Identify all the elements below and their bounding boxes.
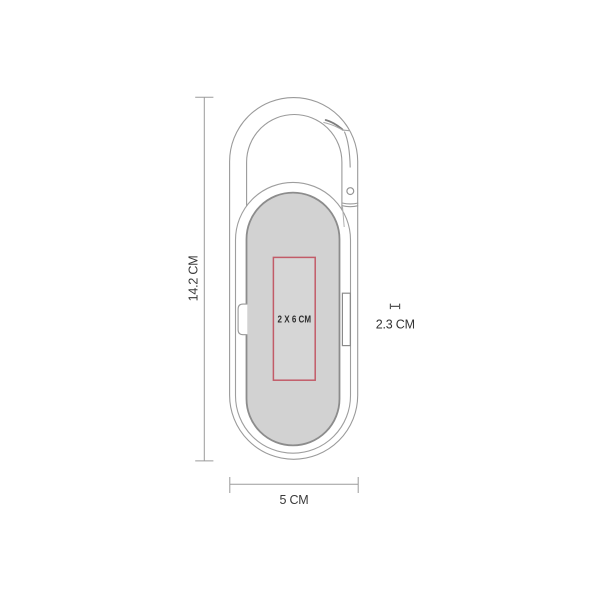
svg-text:14.2 CM: 14.2 CM bbox=[187, 256, 201, 302]
svg-text:5 CM: 5 CM bbox=[279, 493, 308, 507]
svg-text:2.3 CM: 2.3 CM bbox=[376, 318, 415, 332]
svg-text:2 X 6 CM: 2 X 6 CM bbox=[278, 314, 312, 325]
